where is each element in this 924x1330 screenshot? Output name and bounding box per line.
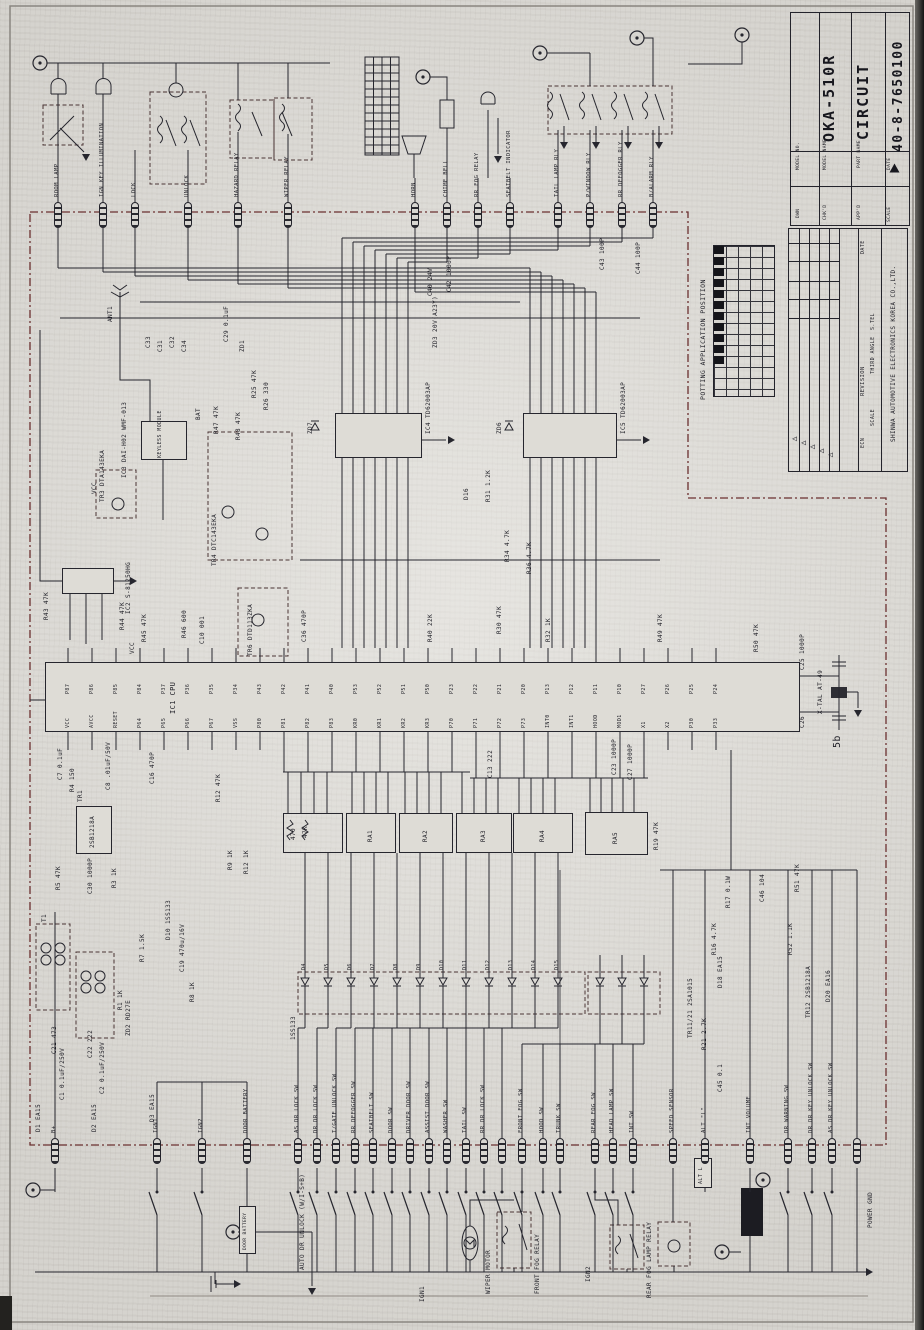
cpu-pin-label: X1 bbox=[642, 721, 647, 728]
keyless-module-block bbox=[141, 421, 187, 460]
component-ref: TR1 bbox=[78, 790, 84, 802]
cpu-pin-label: P21 bbox=[498, 684, 503, 694]
pin-label: ALT "L" bbox=[702, 1107, 708, 1133]
component-ref: R44 47K bbox=[120, 602, 126, 630]
component-ref: R31 1.2K bbox=[486, 470, 492, 502]
part-name-label: PART NAME bbox=[858, 140, 863, 168]
chk-label: CHK'D bbox=[824, 204, 829, 220]
cpu-pin-label: P70 bbox=[450, 718, 455, 728]
component-ref: D1 EA15 bbox=[36, 1104, 42, 1132]
pin-label: DR DR LOCK SW bbox=[314, 1085, 320, 1133]
schematic-sheet: IC1 CPU KEYLESS MODULE DOOR BATTERY ALT … bbox=[0, 0, 924, 1330]
component-ref: IC4 TD62003AP bbox=[426, 382, 432, 434]
component-ref: D18 EA15 bbox=[718, 956, 724, 988]
cpu-pin-label: P82 bbox=[306, 718, 311, 728]
component-ref: C1 0.1uF/250V bbox=[60, 1048, 66, 1100]
component-ref: VCC bbox=[130, 642, 136, 654]
pin-label: AS DR KEY UNLOCK SW bbox=[829, 1062, 835, 1133]
connector-pin bbox=[54, 202, 62, 228]
component-ref: C2 0.1uF/250V bbox=[100, 1042, 106, 1094]
revision-divider bbox=[881, 229, 882, 471]
cpu-pin-label: AVCC bbox=[90, 714, 95, 728]
component-ref: R47 47K bbox=[214, 406, 220, 434]
connector-pin bbox=[198, 1138, 206, 1164]
component-ref: R48 47K bbox=[236, 412, 242, 440]
pin-label: HOOD SW bbox=[540, 1107, 546, 1133]
keyless-module-label: KEYLESS MODULE bbox=[158, 410, 163, 458]
connector-pin bbox=[51, 1138, 59, 1164]
pin-label: TRUNK SW bbox=[557, 1103, 563, 1133]
component-ref: R9 1K bbox=[228, 850, 234, 870]
cpu-pin-label: P33 bbox=[714, 718, 719, 728]
connector-pin bbox=[506, 202, 514, 228]
component-ref: C40 24V bbox=[428, 268, 434, 296]
pin-label: SEATBELT SW bbox=[370, 1092, 376, 1133]
component-ref: R3 1K bbox=[112, 868, 118, 888]
component-ref: C43 100P bbox=[600, 238, 606, 270]
component-ref: TR3 DTA143EKA bbox=[100, 450, 106, 502]
pin-label: HEAD LAMP SW bbox=[610, 1088, 616, 1133]
diode-ref: D4 bbox=[302, 963, 307, 970]
connector-pin bbox=[591, 1138, 599, 1164]
pin-label: SEATBELT INDICATOR bbox=[507, 130, 513, 197]
revision-row-line bbox=[789, 299, 839, 300]
connector-pin bbox=[629, 1138, 637, 1164]
component-ref: C16 470P bbox=[150, 752, 156, 784]
pin-label: DR DR KEY UNLOCK SW bbox=[809, 1062, 815, 1133]
cpu-pin-label: P43 bbox=[258, 684, 263, 694]
component-ref: R7 1.5K bbox=[140, 934, 146, 962]
diode-ref: D7 bbox=[371, 963, 376, 970]
connector-pin bbox=[294, 1138, 302, 1164]
connector-pin bbox=[498, 1138, 506, 1164]
potting-caption: POTTING APPLICATION POSITION bbox=[700, 279, 707, 400]
cpu-pin-label: RESET bbox=[114, 711, 119, 728]
component-ref: C10 001 bbox=[200, 616, 206, 644]
component-ref: WIPER MOTOR bbox=[486, 1250, 492, 1294]
component-ref: R34 4.7K bbox=[505, 530, 511, 562]
connector-pin bbox=[462, 1138, 470, 1164]
connector-pin bbox=[609, 1138, 617, 1164]
connector-pin bbox=[784, 1138, 792, 1164]
diode-ref: D9 bbox=[417, 963, 422, 970]
dwn-label: DWN bbox=[797, 209, 802, 218]
component-ref: C23 1000P bbox=[612, 739, 618, 775]
connector-pin bbox=[406, 1138, 414, 1164]
cpu-pin-label: VCC bbox=[66, 718, 71, 728]
diode-ref: D8 bbox=[394, 963, 399, 970]
cpu-pin-label: X2 bbox=[666, 721, 671, 728]
cpu-pin-label: P80 bbox=[258, 718, 263, 728]
component-ref: D3 EA15 bbox=[150, 1094, 156, 1122]
pin-label: IGN KEY ILLUMINATION bbox=[100, 123, 106, 197]
cpu-pin-label: P51 bbox=[402, 684, 407, 694]
revision-mark: ◁ bbox=[801, 438, 806, 447]
connector-pin bbox=[234, 202, 242, 228]
pin-label: TAIL LAMP RLY bbox=[555, 149, 561, 197]
pin-label: WASHER SW bbox=[444, 1100, 450, 1133]
cpu-pin-label: P20 bbox=[522, 684, 527, 694]
connector-pin bbox=[369, 1138, 377, 1164]
cpu-pin-label: P85 bbox=[114, 684, 119, 694]
cpu-block bbox=[45, 662, 800, 732]
pin-label: SPEED SENSOR bbox=[670, 1088, 676, 1133]
cpu-pin-label: P27 bbox=[642, 684, 647, 694]
connector-pin bbox=[586, 202, 594, 228]
alt-l-label: ALT L bbox=[699, 1167, 704, 1184]
pin-label: RR FOG RELAY bbox=[475, 152, 481, 197]
cpu-pin-label: P73 bbox=[522, 718, 527, 728]
third-angle-label: THIRD ANGLE bbox=[871, 336, 876, 374]
title-block-divider bbox=[885, 13, 886, 225]
connector-pin bbox=[539, 1138, 547, 1164]
ic4-block bbox=[335, 413, 422, 458]
stel-label: S.TEL bbox=[871, 313, 876, 330]
ic5-block bbox=[523, 413, 617, 458]
cpu-pin-label: P52 bbox=[378, 684, 383, 694]
component-ref: ZD3 20V(A23Y) bbox=[433, 296, 439, 348]
component-ref: C27 1000P bbox=[628, 744, 634, 780]
scale-label: SCALE bbox=[888, 206, 893, 222]
cpu-pin-label: KR3 bbox=[426, 718, 431, 728]
cpu-pin-label: KR2 bbox=[402, 718, 407, 728]
component-ref: R43 47K bbox=[44, 592, 50, 620]
component-ref: C21 473 bbox=[52, 1026, 58, 1054]
component-ref: R19 47K bbox=[654, 822, 660, 850]
revision-divider bbox=[858, 229, 859, 471]
connector-pin bbox=[649, 202, 657, 228]
connector-pin bbox=[443, 202, 451, 228]
diode-ref: D13 bbox=[509, 960, 514, 970]
component-ref: R51 47K bbox=[795, 864, 801, 892]
cpu-pin-label: INT1 bbox=[570, 714, 575, 728]
cpu-pin-label: P11 bbox=[594, 684, 599, 694]
cpu-pin-label: P37 bbox=[162, 684, 167, 694]
component-ref: C33 bbox=[146, 336, 152, 348]
connector-pin bbox=[184, 202, 192, 228]
connector-pin bbox=[351, 1138, 359, 1164]
cpu-pin-label: KR1 bbox=[378, 718, 383, 728]
cpu-pin-label: P35 bbox=[210, 684, 215, 694]
pin-label: FRONT FOG SW bbox=[519, 1088, 525, 1133]
connector-pin bbox=[618, 202, 626, 228]
component-ref: D20 EA16 bbox=[826, 970, 832, 1002]
pin-label: DOOR BATTERY bbox=[244, 1088, 250, 1133]
connector-pin bbox=[556, 1138, 564, 1164]
component-ref: 5b bbox=[833, 735, 843, 748]
component-ref: R1 1K bbox=[118, 990, 124, 1010]
model-name-label: MODEL NAME bbox=[824, 139, 829, 170]
pin-label: UNLOCK bbox=[185, 175, 191, 197]
component-ref: R32 1K bbox=[546, 618, 552, 642]
pin-label: RR DEFOGGER SW bbox=[352, 1081, 358, 1133]
component-ref: ZD7 bbox=[308, 422, 314, 434]
component-ref: POWER GND bbox=[868, 1192, 874, 1228]
ra3-label: RA3 bbox=[481, 830, 487, 842]
component-ref: C46 104 bbox=[760, 874, 766, 902]
rev-scale-label: SCALE bbox=[871, 409, 876, 426]
component-ref: T1 bbox=[42, 914, 48, 922]
pin-label: INT VOLUME bbox=[747, 1096, 753, 1133]
connector-pin bbox=[474, 202, 482, 228]
component-ref: IC2 S-81250HG bbox=[126, 562, 132, 614]
component-ref: C36 470P bbox=[302, 610, 308, 642]
diode-ref: D15 bbox=[555, 960, 560, 970]
revision-row-line bbox=[789, 281, 839, 282]
connector-pin bbox=[746, 1138, 754, 1164]
cpu-pin-label: P81 bbox=[282, 718, 287, 728]
component-ref: IGN2 bbox=[586, 1266, 592, 1282]
component-ref: R17 0.1W bbox=[726, 876, 732, 908]
cpu-pin-label: P53 bbox=[354, 684, 359, 694]
connector-pin bbox=[853, 1138, 861, 1164]
component-ref: D2 EA15 bbox=[92, 1104, 98, 1132]
connector-pin bbox=[313, 1138, 321, 1164]
cpu-pin-label: VSS bbox=[234, 718, 239, 728]
component-ref: IC5 TD62003AP bbox=[621, 382, 627, 434]
cpu-pin-label: P87 bbox=[66, 684, 71, 694]
component-ref: C8 .01uF/50V bbox=[106, 742, 112, 790]
cpu-pin-label: P83 bbox=[330, 718, 335, 728]
pin-label: T/GATE UNLOCK SW bbox=[333, 1074, 339, 1133]
pin-label: RR DEFOGGER RLY bbox=[619, 141, 625, 197]
rev-date-label: DATE bbox=[861, 240, 866, 254]
component-ref: IGN1 bbox=[420, 1286, 426, 1302]
connector-pin bbox=[669, 1138, 677, 1164]
connector-pin bbox=[411, 202, 419, 228]
component-ref: REAR FOG LAMP RELAY bbox=[647, 1222, 653, 1298]
diode-ref: D12 bbox=[486, 960, 491, 970]
component-ref: C25 1000P bbox=[800, 634, 806, 670]
component-ref: 1SS133 bbox=[291, 1016, 297, 1040]
revision-mark: ◁ bbox=[810, 442, 815, 451]
component-ref: D16 bbox=[464, 488, 470, 500]
scan-edge-right bbox=[915, 0, 924, 1330]
cpu-pin-label: P67 bbox=[210, 718, 215, 728]
pin-label: DRIVER DOOR SW bbox=[407, 1081, 413, 1133]
pin-label: DR WARNING SW bbox=[785, 1085, 791, 1133]
component-ref: C31 bbox=[158, 340, 164, 352]
component-ref: C26 bbox=[800, 716, 806, 728]
cpu-pin-label: P10 bbox=[618, 684, 623, 694]
pin-label: REAR FOG SW bbox=[592, 1092, 598, 1133]
cpu-pin-label: P24 bbox=[714, 684, 719, 694]
component-ref: R21 2.7K bbox=[702, 1018, 708, 1050]
pin-label: INT SW bbox=[630, 1111, 636, 1133]
component-ref: R16 4.7K bbox=[712, 923, 718, 955]
connector-pin bbox=[284, 202, 292, 228]
drawing-number: 40-8-7650100 bbox=[892, 40, 905, 152]
cpu-pin-label: P86 bbox=[90, 684, 95, 694]
pin-label: P/WINDOW RLY bbox=[587, 152, 593, 197]
connector-pin bbox=[99, 202, 107, 228]
component-ref: VCC bbox=[92, 482, 98, 494]
cpu-pin-label: P13 bbox=[546, 684, 551, 694]
component-ref: R45 47K bbox=[142, 614, 148, 642]
component-ref: R49 47K bbox=[658, 614, 664, 642]
connector-pin bbox=[828, 1138, 836, 1164]
cpu-pin-label: P22 bbox=[474, 684, 479, 694]
connector-pin bbox=[480, 1138, 488, 1164]
component-ref: D10 1SS133 bbox=[166, 900, 172, 940]
door-battery-label: DOOR BATTERY bbox=[244, 1213, 249, 1250]
cpu-pin-label: P71 bbox=[474, 718, 479, 728]
pin-label: WIPER RELAY bbox=[285, 156, 291, 197]
cpu-pin-label: P50 bbox=[426, 684, 431, 694]
pin-label: CHIME BELL bbox=[444, 160, 450, 197]
connector-pin bbox=[701, 1138, 709, 1164]
cpu-pin-label: P65 bbox=[162, 718, 167, 728]
connector-pin bbox=[332, 1138, 340, 1164]
connector-pin bbox=[153, 1138, 161, 1164]
app-label: APP'D bbox=[858, 204, 863, 220]
component-ref: C45 0.1 bbox=[718, 1064, 724, 1092]
diode-ref: D10 bbox=[440, 960, 445, 970]
cpu-pin-label: INT0 bbox=[546, 714, 551, 728]
cpu-pin-label: P84 bbox=[138, 684, 143, 694]
cpu-pin-label: MOD1 bbox=[618, 714, 623, 728]
connector-pin bbox=[443, 1138, 451, 1164]
component-ref: R52 1.1K bbox=[788, 923, 794, 955]
component-ref: R4 150 bbox=[70, 768, 76, 792]
connector-pin bbox=[131, 202, 139, 228]
cpu-pin-label: P64 bbox=[138, 718, 143, 728]
component-ref: R8 1K bbox=[190, 982, 196, 1002]
cpu-pin-label: P12 bbox=[570, 684, 575, 694]
component-ref: C7 0.1uF bbox=[58, 748, 64, 780]
pin-label: HAZARD RELAY bbox=[235, 152, 241, 197]
model-name-value: OKA-510R bbox=[822, 54, 837, 142]
component-ref: R40 22K bbox=[428, 614, 434, 642]
revision-divider bbox=[809, 229, 810, 471]
diode-ref: D5 bbox=[325, 963, 330, 970]
cpu-pin-label: P40 bbox=[330, 684, 335, 694]
diode-ref: D6 bbox=[348, 963, 353, 970]
component-ref: R30 47K bbox=[497, 606, 503, 634]
cpu-pin-label: P25 bbox=[690, 684, 695, 694]
cpu-pin-label: P42 bbox=[282, 684, 287, 694]
component-ref: C13 222 bbox=[488, 750, 494, 778]
component-ref: C30 1000P bbox=[88, 858, 94, 894]
cpu-pin-label: P72 bbox=[498, 718, 503, 728]
ecn-label: ECN bbox=[861, 438, 866, 448]
component-ref: R12 47K bbox=[216, 774, 222, 802]
component-ref: ZD6 bbox=[497, 422, 503, 434]
revision-row-line bbox=[789, 261, 839, 262]
pin-label: B+ bbox=[52, 1126, 58, 1133]
pin-label: AS DR LOCK SW bbox=[295, 1085, 301, 1133]
component-ref: C32 bbox=[170, 336, 176, 348]
connector-pin bbox=[388, 1138, 396, 1164]
component-ref: TR12 2SB1218A bbox=[806, 966, 812, 1018]
component-ref: R5 47K bbox=[56, 866, 62, 890]
ra5-label: RA5 bbox=[613, 832, 619, 844]
cpu-pin-label: P30 bbox=[690, 718, 695, 728]
component-ref: 47K bbox=[303, 826, 309, 838]
connector-pin bbox=[518, 1138, 526, 1164]
component-ref: R50 47K bbox=[754, 624, 760, 652]
pin-label: TAIL SW bbox=[463, 1107, 469, 1133]
pin-label: B/ALARM RLY bbox=[650, 156, 656, 197]
component-ref: BAT bbox=[196, 408, 202, 420]
revision-row-line bbox=[789, 318, 839, 319]
pin-label: RR DR LOCK SW bbox=[481, 1085, 487, 1133]
date-label: DATE bbox=[888, 158, 893, 170]
int-volume-pot bbox=[741, 1188, 763, 1236]
ra2-label: RA2 bbox=[423, 830, 429, 842]
pin-label: LOCK bbox=[132, 182, 138, 197]
component-ref: C22 222 bbox=[88, 1030, 94, 1058]
component-ref: ZD1 bbox=[240, 340, 246, 352]
component-ref: C19 470u/16V bbox=[180, 924, 186, 972]
scan-edge-corner bbox=[0, 1296, 12, 1330]
connector-pin bbox=[554, 202, 562, 228]
pin-label: HORN bbox=[412, 182, 418, 197]
potting-position-table bbox=[713, 245, 775, 397]
title-block-divider bbox=[851, 13, 852, 225]
cpu-pin-label: P41 bbox=[306, 684, 311, 694]
regulator-block bbox=[62, 568, 114, 594]
diode-ref: D14 bbox=[532, 960, 537, 970]
cpu-pin-label: P26 bbox=[666, 684, 671, 694]
component-ref: X-TAL AT-49 bbox=[818, 670, 824, 714]
cpu-pin-label: P23 bbox=[450, 684, 455, 694]
part-name-value: CIRCUIT bbox=[856, 63, 871, 140]
pin-label: ROOM LAMP bbox=[55, 164, 61, 197]
revision-mark: ◁ bbox=[828, 450, 833, 459]
cpu-pin-label: P34 bbox=[234, 684, 239, 694]
connector-pin bbox=[243, 1138, 251, 1164]
pin-label: IGN2 bbox=[199, 1118, 205, 1133]
cpu-pin-label: P66 bbox=[186, 718, 191, 728]
component-ref: C29 0.1uF bbox=[224, 306, 230, 342]
revision-row-line bbox=[789, 243, 839, 244]
component-ref: TR4 DTC143EKA bbox=[212, 514, 218, 566]
component-ref: R46 600 bbox=[182, 610, 188, 638]
component-ref: R25 47K bbox=[252, 370, 258, 398]
revision-divider bbox=[829, 229, 830, 471]
component-ref: TR11/21 2SA1015 bbox=[688, 978, 694, 1038]
component-ref: 470 bbox=[291, 828, 297, 840]
model-no-label: MODEL NO. bbox=[797, 142, 802, 170]
cpu-pin-label: KR0 bbox=[354, 718, 359, 728]
component-ref: R26 330 bbox=[264, 382, 270, 410]
component-ref: TR6 DTD113ZKA bbox=[248, 604, 254, 656]
ra1-label: RA1 bbox=[368, 830, 374, 842]
pin-label: ASSIST DOOR SW bbox=[426, 1081, 432, 1133]
cpu-pin-label: HOOD bbox=[594, 714, 599, 728]
revision-divider bbox=[839, 229, 840, 471]
connector-pin bbox=[808, 1138, 816, 1164]
title-block-divider bbox=[791, 186, 909, 187]
component-ref: R12 1K bbox=[244, 850, 250, 874]
component-ref: ANT1 bbox=[108, 306, 114, 322]
cpu-pin-label: P36 bbox=[186, 684, 191, 694]
revision-label: REVISION bbox=[861, 366, 867, 396]
component-ref: AUTO DR UNLOCK (W/I-S+B) bbox=[300, 1174, 306, 1270]
component-ref: IC3 DAI-H02 WMF-013 bbox=[122, 402, 128, 478]
component-ref: ZD2 RD27E bbox=[126, 1000, 132, 1036]
connector-pin bbox=[425, 1138, 433, 1164]
revision-divider bbox=[799, 229, 800, 471]
revision-mark: ◁ bbox=[792, 434, 797, 443]
component-ref: R36 4.7K bbox=[527, 542, 533, 574]
revision-divider bbox=[819, 229, 820, 471]
ra4-label: RA4 bbox=[540, 830, 546, 842]
component-ref: C42 1000P bbox=[447, 256, 453, 292]
company-name: SHINWA AUTOMOTIVE ELECTRONICS KOREA CO.,… bbox=[891, 265, 897, 442]
component-symbols bbox=[41, 57, 680, 1260]
